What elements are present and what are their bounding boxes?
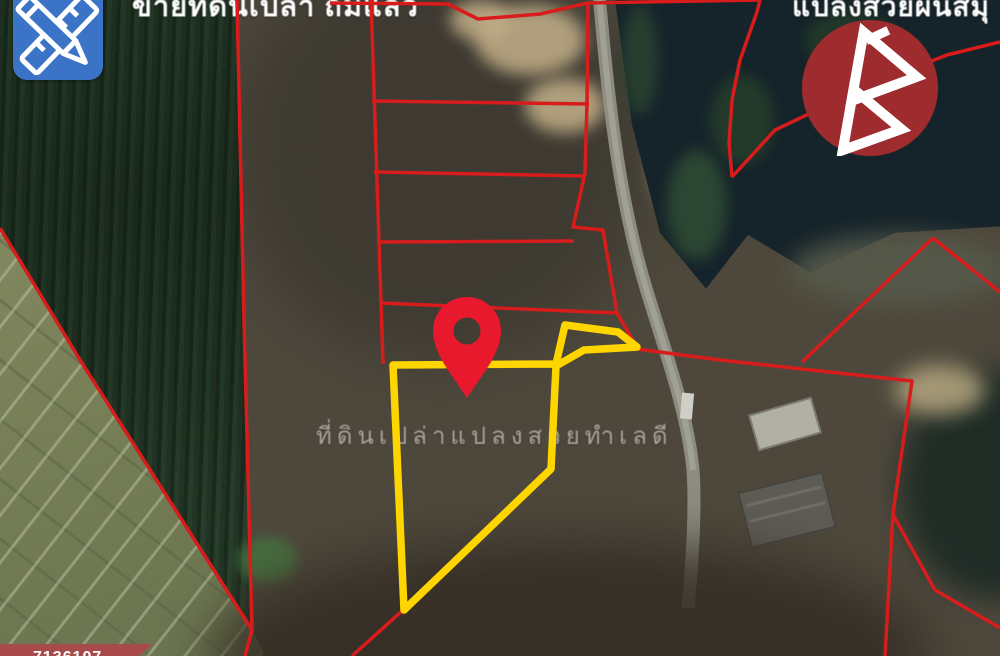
location-pin: [433, 297, 501, 398]
red-boundary-line: [380, 303, 617, 313]
red-boundary-line: [372, 101, 589, 104]
pencil-ruler-icon: [13, 0, 103, 80]
red-boundary-line: [893, 515, 1000, 628]
brand-logo: [802, 20, 938, 156]
measure-tool-button[interactable]: [13, 0, 103, 80]
red-boundary-line: [637, 349, 912, 656]
red-boundary-line: [0, 228, 252, 656]
map-canvas: ขายที่ดินเปล่า ถมแล้ว แปลงสวยผืนสมุ ที่ด…: [0, 0, 1000, 656]
triangle-b-logo-icon: [802, 20, 938, 156]
listing-number-banner: 7136107: [0, 644, 153, 656]
red-boundary-line: [371, 0, 383, 364]
red-boundary-line: [933, 238, 1000, 292]
red-boundary-line: [374, 172, 586, 176]
red-boundary-line: [237, 0, 252, 630]
yellow-highlight-polygon: [393, 325, 637, 610]
red-boundary-line: [802, 238, 933, 362]
red-boundary-line: [330, 0, 760, 19]
listing-number: 7136107: [33, 649, 153, 656]
red-boundary-line: [377, 241, 574, 242]
red-boundary-line: [352, 610, 403, 656]
